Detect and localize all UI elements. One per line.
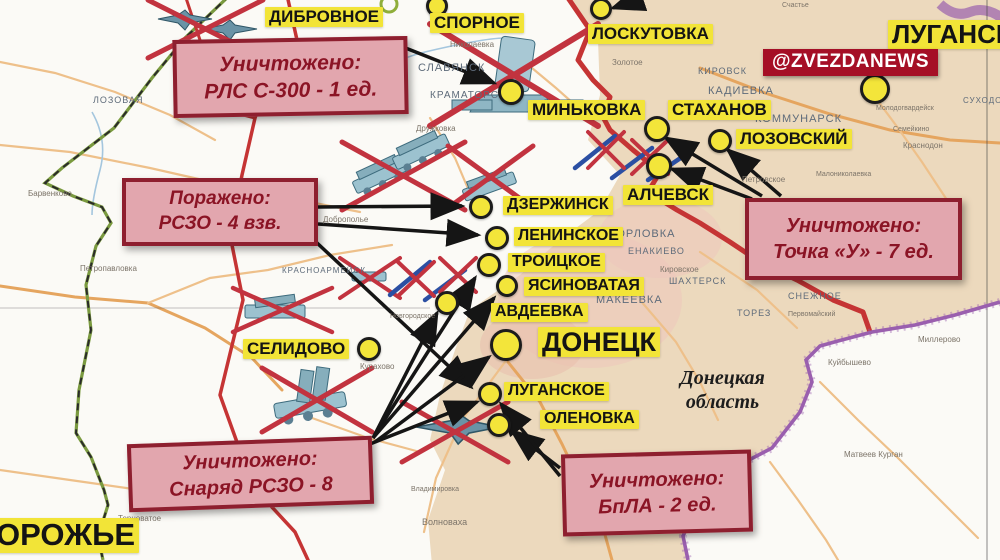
map-label: Малониколаевка [816,171,871,178]
city-label-minkovka: МИНЬКОВКА [528,100,645,120]
city-marker-donetsk [490,329,522,361]
map-label: Кировское [660,265,699,274]
callout-detail: РСЗО - 4 взв. [126,212,314,237]
city-marker-olenovka [487,413,511,437]
map-label: СНЕЖНОЕ [788,291,842,301]
map-label: ЛОЗОВАЯ [93,95,143,105]
map-label: Первомайский [788,311,835,318]
city-label-dibrovnoe: ДИБРОВНОЕ [265,7,383,27]
map-label: КРАСНОАРМЕЙСК [282,266,366,275]
map-screenshot: Николаевка СЛАВЯНСК КРАМАТОРСК Дружковка… [0,0,1000,560]
city-label-lozovsky: ЛОЗОВСКИЙ [736,129,852,149]
callout-title: Уничтожено: [177,48,404,79]
city-label-selidovo: СЕЛИДОВО [243,339,349,359]
callout-title: Уничтожено: [749,213,958,239]
map-label: СУХОДОЛЬСК [963,96,1000,105]
map-label: Барвенково [28,189,72,198]
city-marker-lugansk [860,74,890,104]
map-label: ЕНАКИЕВО [628,246,685,256]
city-marker-leninskoe [485,226,509,250]
map-label: КРАМАТОРСК [430,90,506,101]
city-marker-troitskoe [477,253,501,277]
city-label-leninskoe: ЛЕНИНСКОЕ [514,227,623,246]
city-label-luganskoe: ЛУГАНСКОЕ [504,382,609,401]
map-label: Счастье [782,2,809,9]
map-label: Петровское [742,175,785,184]
map-label: Куйбышево [828,358,871,367]
city-marker-kramatorsk [498,79,524,105]
city-marker-selidovo [357,337,381,361]
region-note-line2: область [665,390,780,414]
map-label: ШАХТЕРСК [669,276,726,286]
map-label: Владимировка [411,486,459,493]
map-label: Курахово [360,362,394,371]
region-note: Донецкая область [665,366,780,414]
map-label: Николаевка [450,40,494,49]
map-label: Петропавловка [80,264,137,273]
city-marker-dzerzhinsk [469,195,493,219]
map-label: Миллерово [918,335,960,344]
city-marker-lozovsky [708,129,732,153]
city-label-loskutovka: ЛОСКУТОВКА [588,24,713,44]
callout-tochka-u: Уничтожено: Точка «У» - 7 ед. [745,198,962,280]
map-label: Золотое [612,58,643,67]
watermark-badge: @ZVEZDANEWS [763,49,938,76]
city-label-stakhanov: СТАХАНОВ [668,100,771,120]
map-label: Дружковка [416,124,456,133]
city-marker-luganskoe [478,382,502,406]
map-label: Семейкино [893,126,929,133]
city-label-alchevsk: АЛЧЕВСК [623,185,713,205]
map-label: Доброполье [323,215,368,224]
city-label-olenovka: ОЛЕНОВКА [540,410,639,429]
city-marker-stakhanov [644,116,670,142]
city-label-donetsk: ДОНЕЦК [538,327,660,357]
city-label-dzerzhinsk: ДЗЕРЖИНСК [503,196,613,215]
map-label: Волноваха [422,517,467,527]
callout-bpla: Уничтожено: БпЛА - 2 ед. [561,450,753,537]
map-label: СЛАВЯНСК [418,62,485,74]
city-label-spornoe: СПОРНОЕ [430,13,524,33]
city-marker-yasinovataya [496,275,518,297]
callout-rszo-porazheno: Поражено: РСЗО - 4 взв. [122,178,318,246]
map-label: КАДИЕВКА [708,85,774,97]
map-label: Краснодон [903,141,943,150]
city-marker-avdeevka [435,291,459,315]
arrow [318,206,462,207]
map-label: ТОРЕЗ [737,308,771,318]
callout-rls-s300: Уничтожено: РЛС С-300 - 1 ед. [172,36,408,118]
region-label-zaporozhye: ОРОЖЬЕ [0,518,139,553]
map-label: Матвеев Курган [844,450,903,459]
callout-detail: Точка «У» - 7 ед. [749,239,958,265]
callout-detail: БпЛА - 2 ед. [566,491,749,522]
region-note-line1: Донецкая [665,366,780,390]
city-label-avdeevka: АВДЕЕВКА [491,303,588,322]
callout-title: Поражено: [126,187,314,212]
map-label: Молодогвардейск [876,105,934,112]
map-label: КИРОВСК [698,66,747,76]
map-label: Новгородское [390,313,435,320]
callout-detail: РЛС С-300 - 1 ед. [177,75,404,106]
city-label-troitskoe: ТРОИЦКОЕ [508,253,605,272]
map-label: МАКЕЕВКА [596,294,663,306]
region-label-lugansk: ЛУГАНСК [888,20,1000,49]
callout-snaryad-rszo: Уничтожено: Снаряд РСЗО - 8 [127,436,374,513]
city-marker-alchevsk [646,153,672,179]
city-label-yasinovataya: ЯСИНОВАТАЯ [524,277,644,296]
